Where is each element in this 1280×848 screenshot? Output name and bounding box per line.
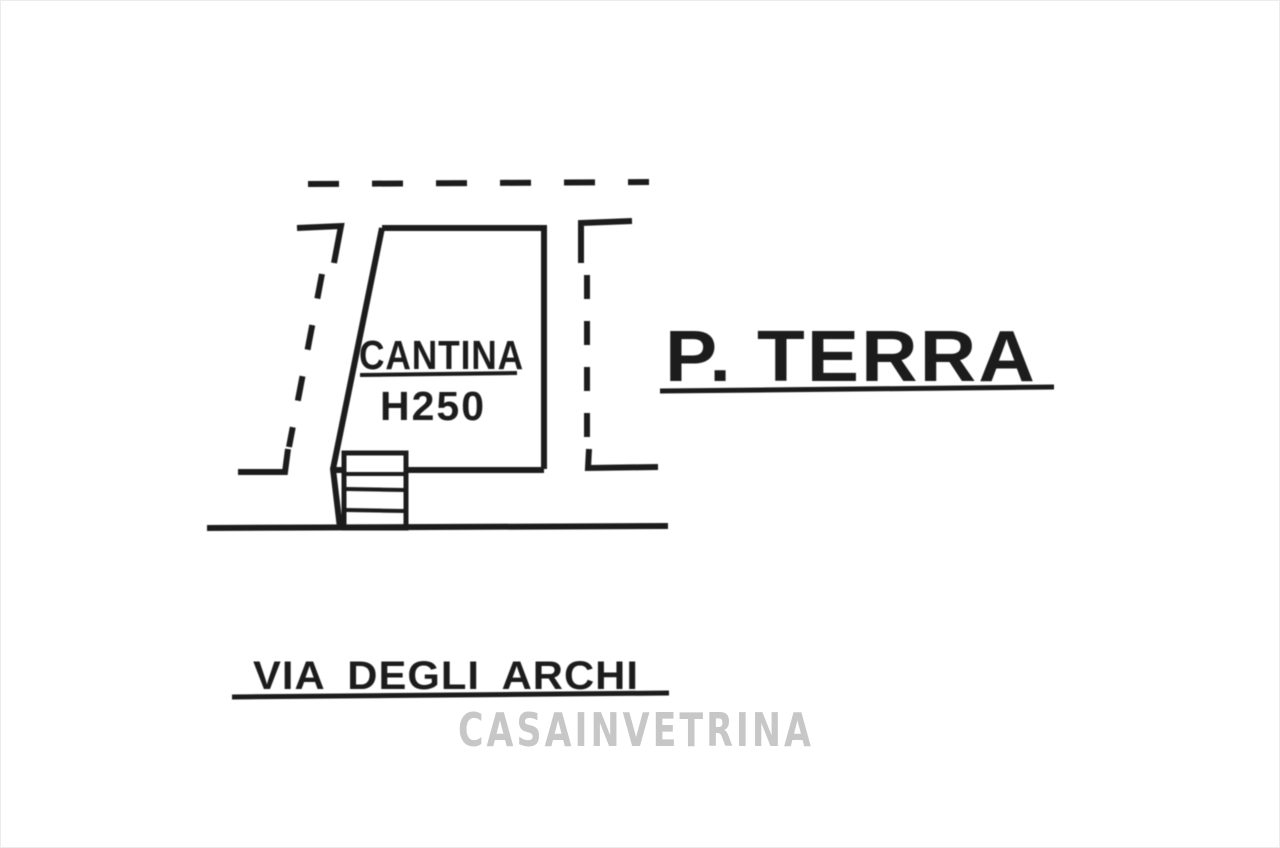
room-height-label: H250 [380,383,486,429]
boundary-dashed-top-line [308,182,649,184]
plan-ink-layer: CANTINA H250 P. TERRA VIA DEGLI ARCHI [207,182,1054,698]
right-wall-corner-top [581,221,632,263]
street-ground-line [207,526,668,528]
boundary-dashed-left-diagonal [289,274,322,447]
floorplan-drawing: CANTINA H250 P. TERRA VIA DEGLI ARCHI CA… [1,1,1280,848]
street-label: VIA DEGLI ARCHI [253,654,639,698]
room-label-cantina: CANTINA [359,332,524,378]
right-wall-corner-bottom [588,449,658,468]
floor-label: P. TERRA [665,317,1037,397]
left-wall-corner-top [297,226,341,263]
left-wall-corner-bottom [238,449,288,472]
staircase-step-line [346,510,404,511]
watermark-text: CASAINVETRINA [458,703,814,757]
staircase-step-line [346,489,404,490]
floorplan-page: CANTINA H250 P. TERRA VIA DEGLI ARCHI CA… [0,0,1280,848]
staircase [344,453,406,528]
